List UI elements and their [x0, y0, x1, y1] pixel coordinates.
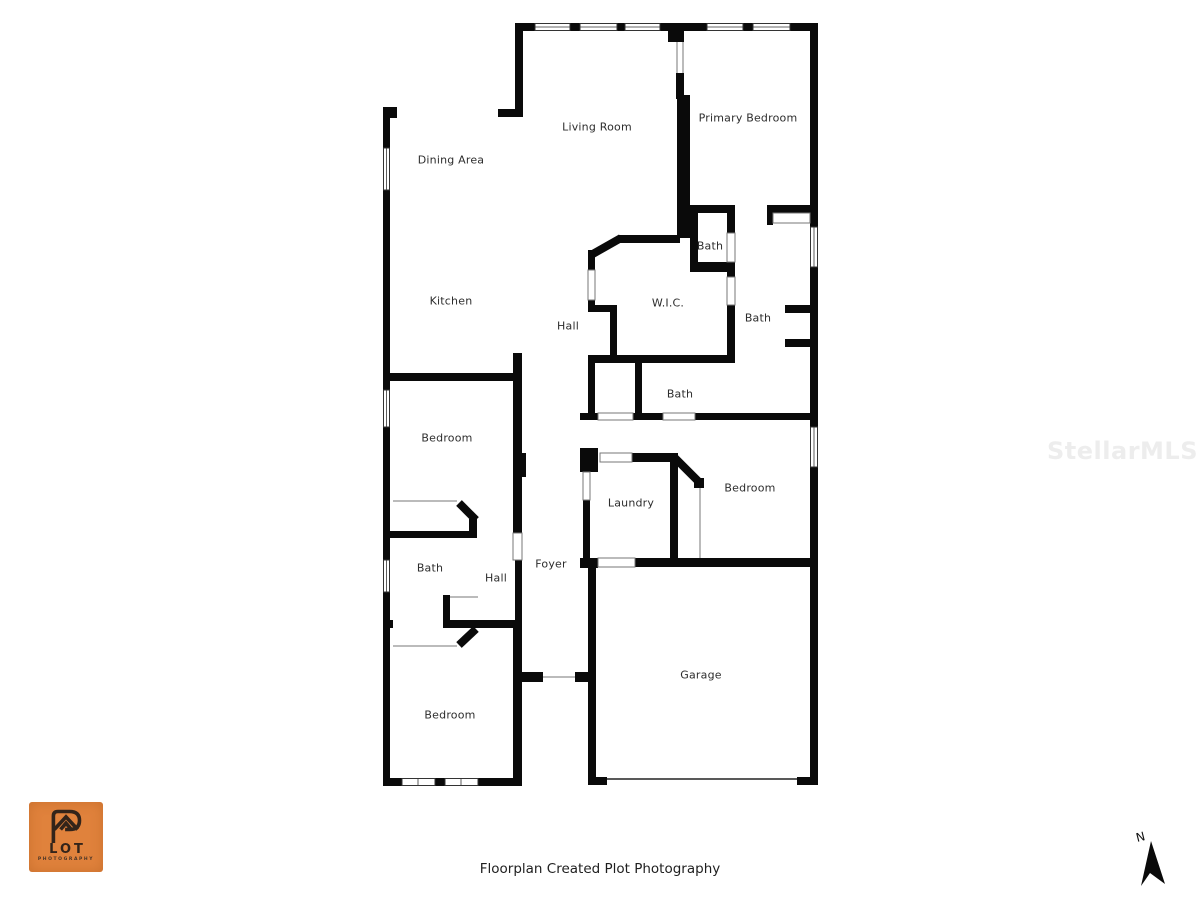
floorplan-drawing [0, 0, 1200, 900]
room-label-garage: Garage [680, 669, 721, 682]
room-label-foyer: Foyer [535, 558, 566, 571]
room-label-bedroom-right: Bedroom [724, 482, 775, 495]
windows [384, 24, 818, 786]
garage-door [607, 777, 797, 785]
room-label-dining-area: Dining Area [418, 154, 485, 167]
room-label-primary-bedroom: Primary Bedroom [699, 112, 798, 125]
window-midlines [387, 27, 815, 786]
room-label-bedroom-lower-left: Bedroom [424, 709, 475, 722]
room-label-bath-middle: Bath [667, 388, 693, 401]
room-label-hall-upper: Hall [557, 320, 579, 333]
stellar-mls-watermark: StellarMLS [1047, 437, 1198, 465]
north-arrow-shape [1126, 824, 1178, 894]
logo-word: LOT [32, 843, 103, 856]
plot-logo-p-house-icon [44, 807, 88, 843]
room-label-bedroom-upper-left: Bedroom [421, 432, 472, 445]
room-label-bath-primary: Bath [745, 312, 771, 325]
room-label-kitchen: Kitchen [430, 295, 473, 308]
room-label-hall-lower: Hall [485, 572, 507, 585]
walls [383, 23, 818, 786]
room-label-bath-left: Bath [417, 562, 443, 575]
room-label-living-room: Living Room [562, 121, 632, 134]
floorplan-page: Living Room Primary Bedroom Dining Area … [0, 0, 1200, 900]
footer-caption: Floorplan Created Plot Photography [0, 861, 1200, 877]
room-label-wic: W.I.C. [652, 297, 684, 310]
room-label-laundry: Laundry [608, 497, 654, 510]
north-arrow-icon: N [1126, 824, 1178, 894]
room-label-bath-wc: Bath [697, 240, 723, 253]
